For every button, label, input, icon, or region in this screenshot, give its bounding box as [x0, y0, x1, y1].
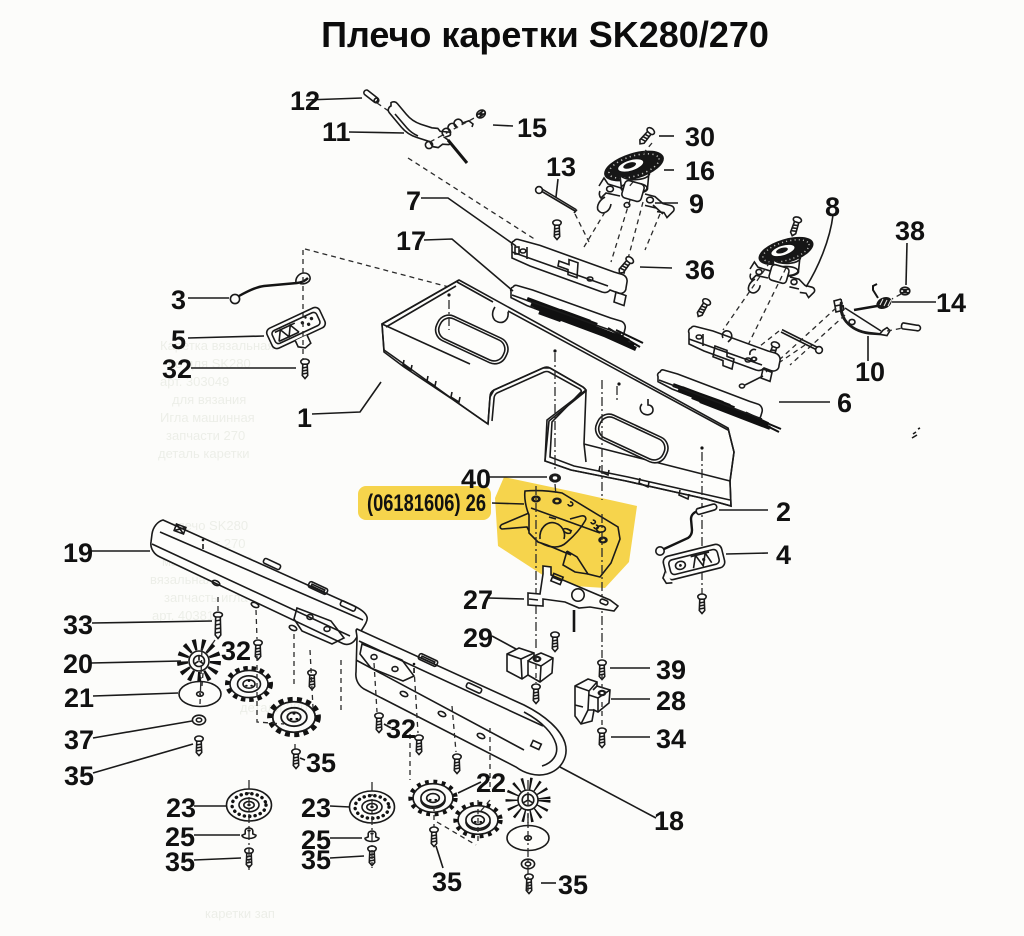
svg-text:15: 15: [517, 113, 547, 143]
svg-text:27: 27: [463, 585, 493, 615]
svg-text:14: 14: [936, 288, 966, 318]
svg-text:9: 9: [689, 189, 704, 219]
svg-text:(06181606) 26: (06181606) 26: [367, 490, 486, 517]
svg-text:35: 35: [301, 845, 331, 875]
svg-text:35: 35: [64, 761, 94, 791]
svg-text:38: 38: [895, 216, 925, 246]
svg-text:деталь каретки: деталь каретки: [158, 446, 250, 461]
svg-text:11: 11: [322, 117, 351, 147]
svg-text:2: 2: [776, 497, 791, 527]
svg-text:23: 23: [166, 793, 196, 823]
svg-text:13: 13: [546, 152, 576, 182]
svg-text:12: 12: [290, 86, 320, 116]
svg-text:5: 5: [171, 325, 186, 355]
svg-text:35: 35: [558, 870, 588, 900]
svg-text:34: 34: [656, 724, 686, 754]
svg-text:22: 22: [476, 768, 506, 798]
svg-text:29: 29: [463, 623, 493, 653]
svg-text:10: 10: [855, 357, 885, 387]
svg-text:4: 4: [776, 540, 791, 570]
svg-text:30: 30: [685, 122, 715, 152]
svg-text:6: 6: [837, 388, 852, 418]
svg-text:каретки зап: каретки зап: [205, 906, 275, 921]
svg-text:7: 7: [406, 186, 421, 216]
svg-text:3: 3: [171, 285, 186, 315]
svg-text:40: 40: [461, 464, 491, 494]
svg-text:37: 37: [64, 725, 94, 755]
svg-text:28: 28: [656, 686, 686, 716]
svg-text:16: 16: [685, 156, 715, 186]
svg-text:32: 32: [386, 714, 416, 744]
svg-text:32: 32: [162, 354, 192, 384]
svg-text:35: 35: [165, 847, 195, 877]
svg-text:для вязания: для вязания: [172, 392, 246, 407]
svg-text:21: 21: [64, 683, 94, 713]
svg-text:32: 32: [221, 636, 251, 666]
svg-text:запчасти 270: запчасти 270: [166, 428, 245, 443]
svg-text:23: 23: [301, 793, 331, 823]
svg-text:35: 35: [432, 867, 462, 897]
svg-text:18: 18: [654, 806, 684, 836]
svg-text:8: 8: [825, 192, 840, 222]
svg-text:Плечо каретки SK280/270: Плечо каретки SK280/270: [321, 14, 769, 55]
svg-text:1: 1: [297, 403, 312, 433]
svg-text:36: 36: [685, 255, 715, 285]
svg-text:33: 33: [63, 610, 93, 640]
svg-text:39: 39: [656, 655, 686, 685]
svg-text:17: 17: [396, 226, 426, 256]
svg-text:35: 35: [306, 748, 336, 778]
svg-text:Игла машинная: Игла машинная: [160, 410, 255, 425]
svg-text:20: 20: [63, 649, 93, 679]
svg-text:19: 19: [63, 538, 93, 568]
